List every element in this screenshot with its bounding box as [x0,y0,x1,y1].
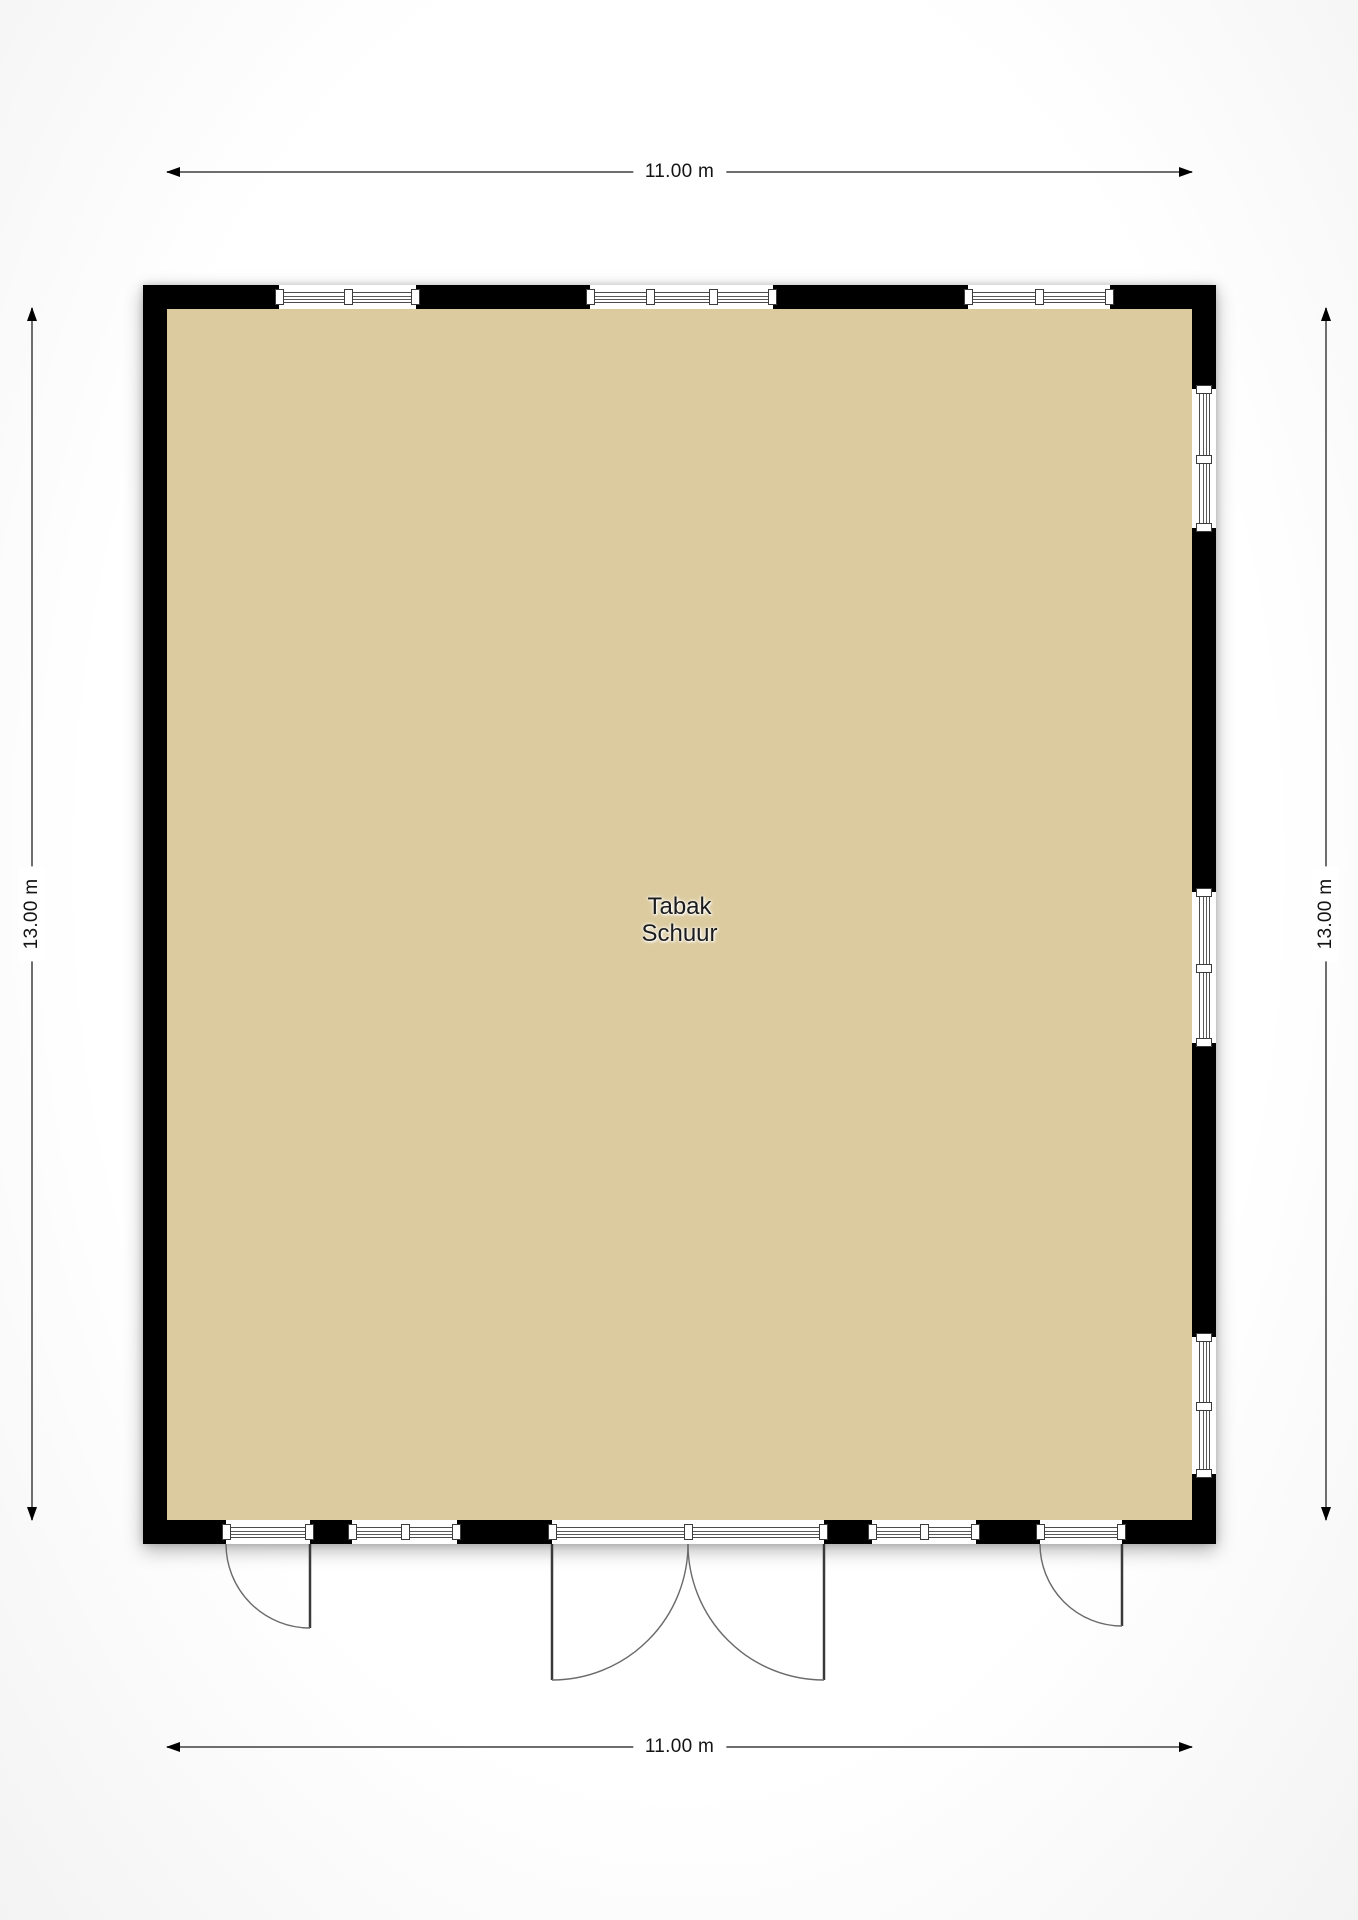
window-post [1196,385,1212,394]
door-post [548,1524,557,1540]
window-post [1196,455,1212,464]
window-post [971,1524,980,1540]
dimension-line-right: 13.00 m [1325,308,1327,1520]
window-post [768,289,777,305]
door-swing-right[interactable] [1040,1544,1122,1626]
dimension-label-top: 11.00 m [633,159,726,185]
window-post [1035,289,1044,305]
window-post [1196,1333,1212,1342]
window-post [1105,289,1114,305]
door-swing-double[interactable] [552,1544,824,1680]
window-post [1196,888,1212,897]
floor-plan-canvas: 11.00 m 11.00 m 13.00 m 13.00 m Tabak Sc… [0,0,1358,1920]
window-post [411,289,420,305]
window-glass [591,292,772,303]
dimension-label-bottom: 11.00 m [633,1734,726,1760]
window-top-3[interactable] [968,285,1110,309]
window-post [868,1524,877,1540]
door-post [222,1524,231,1540]
window-post [1196,1402,1212,1411]
door-post [305,1524,314,1540]
window-post [348,1524,357,1540]
window-post [964,289,973,305]
window-right-2[interactable] [1192,892,1216,1043]
dimension-label-left: 13.00 m [19,867,45,962]
window-post [401,1524,410,1540]
window-post [646,289,655,305]
room-label: Tabak Schuur [167,893,1192,947]
dimension-line-bottom: 11.00 m [167,1746,1192,1748]
door-panel-closed [1041,1527,1121,1538]
window-bottom-2[interactable] [872,1520,976,1544]
window-top-1[interactable] [279,285,416,309]
door-post [1036,1524,1045,1540]
dimension-line-top: 11.00 m [167,171,1192,173]
window-post [709,289,718,305]
window-post [344,289,353,305]
door-post [819,1524,828,1540]
window-post [1196,1038,1212,1047]
door-panel-closed [227,1527,309,1538]
window-bottom-1[interactable] [352,1520,457,1544]
window-top-2[interactable] [590,285,773,309]
door-opening-double[interactable] [552,1520,824,1544]
room-label-line2: Schuur [167,920,1192,947]
room-label-line1: Tabak [167,893,1192,920]
window-post [452,1524,461,1540]
window-post [1196,523,1212,532]
door-post [1117,1524,1126,1540]
window-right-3[interactable] [1192,1337,1216,1474]
door-post [684,1524,693,1540]
dimension-label-right: 13.00 m [1313,867,1339,962]
window-post [920,1524,929,1540]
window-post [1196,964,1212,973]
dimension-line-left: 13.00 m [31,308,33,1520]
door-opening-right[interactable] [1040,1520,1122,1544]
window-post [1196,1469,1212,1478]
window-post [275,289,284,305]
door-opening-left[interactable] [226,1520,310,1544]
window-post [586,289,595,305]
window-right-1[interactable] [1192,389,1216,528]
door-swing-left[interactable] [226,1544,310,1628]
